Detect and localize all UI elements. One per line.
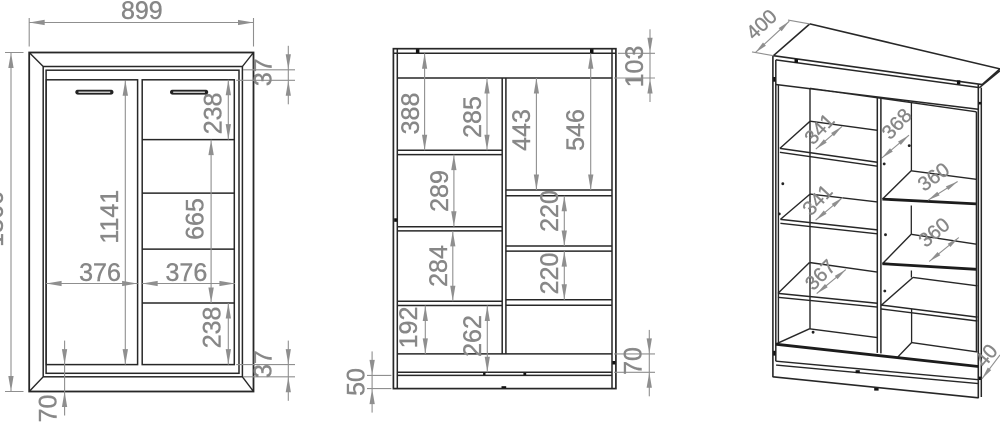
svg-text:400: 400: [742, 6, 781, 45]
svg-text:341: 341: [801, 110, 840, 149]
svg-text:289: 289: [426, 170, 454, 212]
svg-text:50: 50: [343, 368, 371, 396]
svg-text:238: 238: [199, 93, 227, 135]
svg-text:376: 376: [79, 259, 121, 287]
svg-text:376: 376: [166, 259, 208, 287]
svg-text:443: 443: [508, 109, 536, 151]
svg-text:284: 284: [425, 245, 453, 287]
svg-text:70: 70: [35, 395, 63, 423]
svg-text:360: 360: [914, 159, 954, 196]
svg-text:665: 665: [182, 198, 210, 240]
svg-text:546: 546: [562, 109, 590, 151]
svg-text:1141: 1141: [96, 190, 124, 244]
svg-text:388: 388: [397, 93, 425, 135]
svg-text:220: 220: [536, 253, 564, 295]
svg-text:238: 238: [199, 307, 227, 349]
svg-text:103: 103: [621, 46, 649, 88]
svg-text:37: 37: [250, 350, 278, 378]
svg-text:285: 285: [459, 96, 487, 138]
svg-text:899: 899: [121, 0, 163, 25]
svg-text:367: 367: [801, 256, 840, 295]
svg-text:220: 220: [536, 190, 564, 232]
svg-text:37: 37: [250, 58, 278, 86]
svg-text:192: 192: [395, 307, 423, 349]
svg-text:70: 70: [620, 347, 648, 375]
svg-text:341: 341: [799, 181, 838, 220]
svg-text:1366: 1366: [0, 191, 9, 247]
svg-text:262: 262: [459, 315, 487, 357]
